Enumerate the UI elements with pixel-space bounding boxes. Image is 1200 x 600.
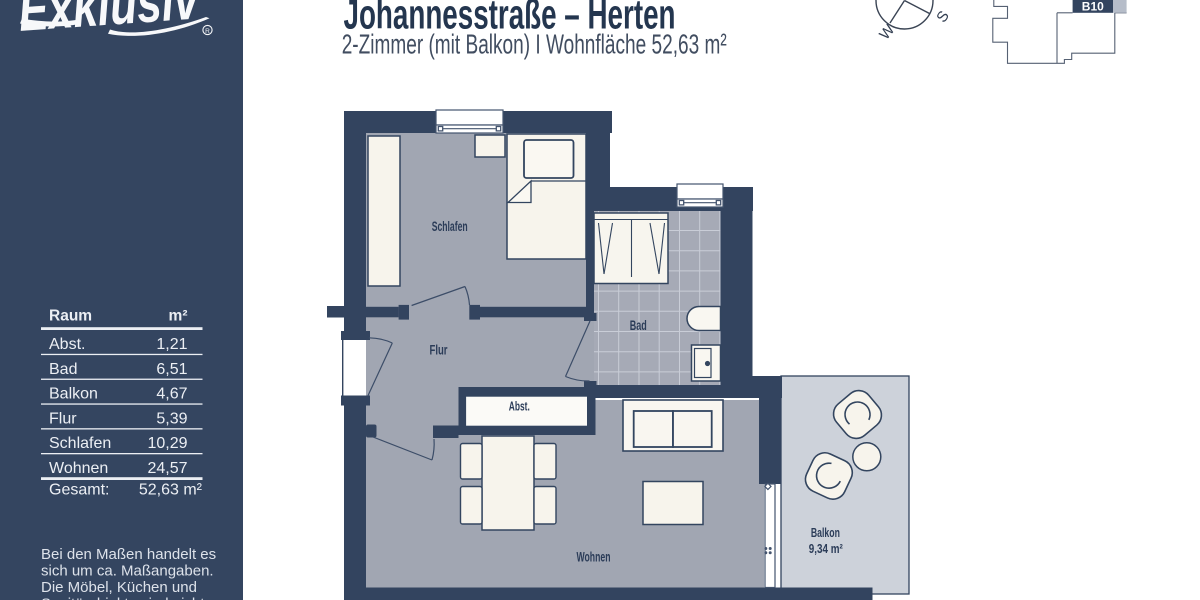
svg-text:m²: m²	[169, 308, 188, 325]
svg-text:Bei den Maßen handelt es: Bei den Maßen handelt es	[41, 546, 216, 563]
svg-text:4,67: 4,67	[156, 386, 187, 403]
svg-text:10,29: 10,29	[147, 435, 187, 452]
svg-text:Bad: Bad	[49, 361, 77, 378]
svg-text:Bad: Bad	[630, 318, 647, 333]
svg-text:1,21: 1,21	[156, 336, 187, 353]
svg-text:Raum: Raum	[49, 308, 92, 325]
svg-text:5,39: 5,39	[156, 410, 187, 427]
svg-text:Schlafen: Schlafen	[432, 219, 468, 234]
svg-text:Sanitärobjekte sind nicht: Sanitärobjekte sind nicht	[41, 596, 205, 600]
svg-text:52,63 m²: 52,63 m²	[139, 482, 203, 499]
svg-text:6,51: 6,51	[156, 361, 187, 378]
svg-text:Abst.: Abst.	[509, 399, 530, 414]
svg-text:Balkon: Balkon	[49, 386, 98, 403]
svg-text:Flur: Flur	[430, 343, 449, 358]
svg-text:B10: B10	[1082, 2, 1104, 14]
svg-text:sich um ca. Maßangaben.: sich um ca. Maßangaben.	[41, 563, 214, 580]
svg-text:Gesamt:: Gesamt:	[49, 482, 109, 499]
svg-text:2-Zimmer (mit Balkon) I Wohnf: 2-Zimmer (mit Balkon) I Wohnfläche 52,63…	[342, 29, 727, 60]
svg-text:Abst.: Abst.	[49, 336, 85, 353]
svg-text:Schlafen: Schlafen	[49, 435, 111, 452]
svg-text:Balkon: Balkon	[811, 525, 840, 540]
svg-text:Wohnen: Wohnen	[577, 550, 611, 565]
svg-text:24,57: 24,57	[147, 460, 187, 477]
svg-text:9,34 m²: 9,34 m²	[809, 542, 843, 556]
svg-text:Flur: Flur	[49, 410, 77, 427]
svg-text:Wohnen: Wohnen	[49, 460, 108, 477]
svg-text:R: R	[205, 28, 210, 35]
svg-text:Die Möbel, Küchen und: Die Möbel, Küchen und	[41, 579, 197, 596]
